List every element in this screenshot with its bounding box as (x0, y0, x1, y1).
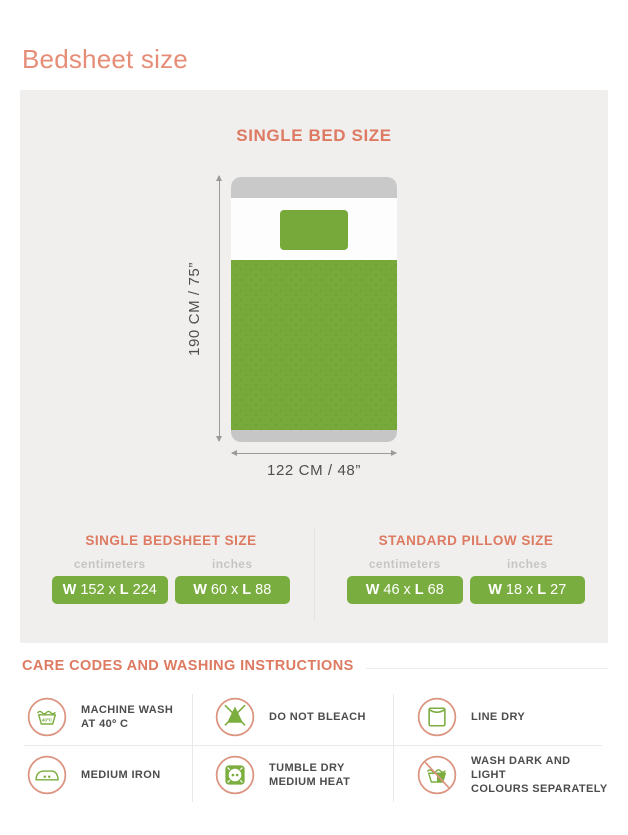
care-item-machine-wash: 40ºC MACHINE WASH AT 40º C (20, 688, 192, 746)
do-not-bleach-icon (214, 696, 256, 738)
care-codes-grid: 40ºC MACHINE WASH AT 40º C DO NOT BLEACH (20, 688, 608, 810)
x-separator: x (109, 582, 116, 598)
machine-wash-icon: 40ºC (26, 696, 68, 738)
care-label: DO NOT BLEACH (269, 710, 366, 724)
care-grid-divider-horizontal (24, 745, 602, 746)
w-value: 60 (211, 582, 227, 598)
x-separator: x (231, 582, 238, 598)
size-value-cm: W 152 x L 224 (52, 576, 168, 604)
size-value-inches: W 60 x L 88 (175, 576, 291, 604)
l-label: L (537, 582, 546, 598)
care-label-line2: AT 40º C (81, 717, 173, 731)
care-section-header: CARE CODES AND WASHING INSTRUCTIONS (22, 658, 608, 674)
bed-headboard (231, 177, 397, 198)
w-label: W (366, 582, 380, 598)
size-value-inches: W 18 x L 27 (470, 576, 586, 604)
w-value: 46 (383, 582, 399, 598)
care-label: LINE DRY (471, 710, 525, 724)
page-title: Bedsheet size (22, 44, 188, 75)
w-label: W (193, 582, 207, 598)
care-label-line1: MEDIUM IRON (81, 768, 161, 782)
width-dimension-label: 122 CM / 48” (214, 462, 414, 479)
care-label-line1: LINE DRY (471, 710, 525, 724)
l-label: L (120, 582, 129, 598)
tables-divider (314, 528, 315, 620)
unit-label-centimeters: centimeters (347, 557, 463, 571)
care-label: TUMBLE DRY MEDIUM HEAT (269, 761, 350, 790)
care-item-wash-separately: WASH DARK AND LIGHT COLOURS SEPARATELY (393, 746, 608, 804)
x-separator: x (526, 582, 533, 598)
wash-temp-badge: 40ºC (42, 717, 53, 723)
wash-separately-icon (416, 754, 458, 796)
size-value-cm: W 46 x L 68 (347, 576, 463, 604)
bed-size-panel: SINGLE BED SIZE 190 CM / 75” 122 CM / 48… (20, 90, 608, 643)
care-heading: CARE CODES AND WASHING INSTRUCTIONS (22, 658, 354, 674)
bed-diagram (231, 177, 397, 442)
width-dimension-line (232, 453, 396, 454)
l-value: 88 (255, 582, 271, 598)
care-label-line1: WASH DARK AND LIGHT (471, 754, 608, 783)
infographic-page: Bedsheet size SINGLE BED SIZE 190 CM / 7… (0, 0, 628, 835)
care-grid-divider-vertical (393, 694, 394, 802)
care-heading-rule (366, 668, 608, 669)
care-label-line1: DO NOT BLEACH (269, 710, 366, 724)
w-label: W (63, 582, 77, 598)
w-value: 152 (80, 582, 104, 598)
care-label-line1: MACHINE WASH (81, 703, 173, 717)
care-label-line2: COLOURS SEPARATELY (471, 782, 608, 796)
l-label: L (415, 582, 424, 598)
medium-iron-icon (26, 754, 68, 796)
care-label: WASH DARK AND LIGHT COLOURS SEPARATELY (471, 754, 608, 797)
pillow-shape (280, 210, 348, 250)
x-separator: x (404, 582, 411, 598)
unit-label-inches: inches (470, 557, 586, 571)
unit-label-centimeters: centimeters (52, 557, 168, 571)
bedsheet-size-table: SINGLE BEDSHEET SIZE centimeters inches … (52, 533, 290, 604)
l-value: 68 (428, 582, 444, 598)
care-label: MEDIUM IRON (81, 768, 161, 782)
w-label: W (488, 582, 502, 598)
pillow-size-heading: STANDARD PILLOW SIZE (347, 533, 585, 548)
bedsheet-shape (231, 260, 397, 430)
pillow-size-table: STANDARD PILLOW SIZE centimeters inches … (347, 533, 585, 604)
care-item-medium-iron: MEDIUM IRON (20, 746, 192, 804)
l-value: 27 (550, 582, 566, 598)
l-label: L (242, 582, 251, 598)
l-value: 224 (133, 582, 157, 598)
care-item-do-not-bleach: DO NOT BLEACH (192, 688, 393, 746)
unit-label-inches: inches (175, 557, 291, 571)
tumble-dry-icon (214, 754, 256, 796)
care-item-tumble-dry: TUMBLE DRY MEDIUM HEAT (192, 746, 393, 804)
bedsheet-size-heading: SINGLE BEDSHEET SIZE (52, 533, 290, 548)
panel-heading: SINGLE BED SIZE (20, 126, 608, 146)
height-dimension-label: 190 CM / 75” (186, 177, 206, 441)
line-dry-icon (416, 696, 458, 738)
care-label-line1: TUMBLE DRY (269, 761, 350, 775)
care-grid-divider-vertical (192, 694, 193, 802)
care-label-line2: MEDIUM HEAT (269, 775, 350, 789)
bed-footboard (231, 430, 397, 442)
w-value: 18 (506, 582, 522, 598)
care-label: MACHINE WASH AT 40º C (81, 703, 173, 732)
height-dimension-line (219, 176, 220, 441)
care-item-line-dry: LINE DRY (393, 688, 608, 746)
